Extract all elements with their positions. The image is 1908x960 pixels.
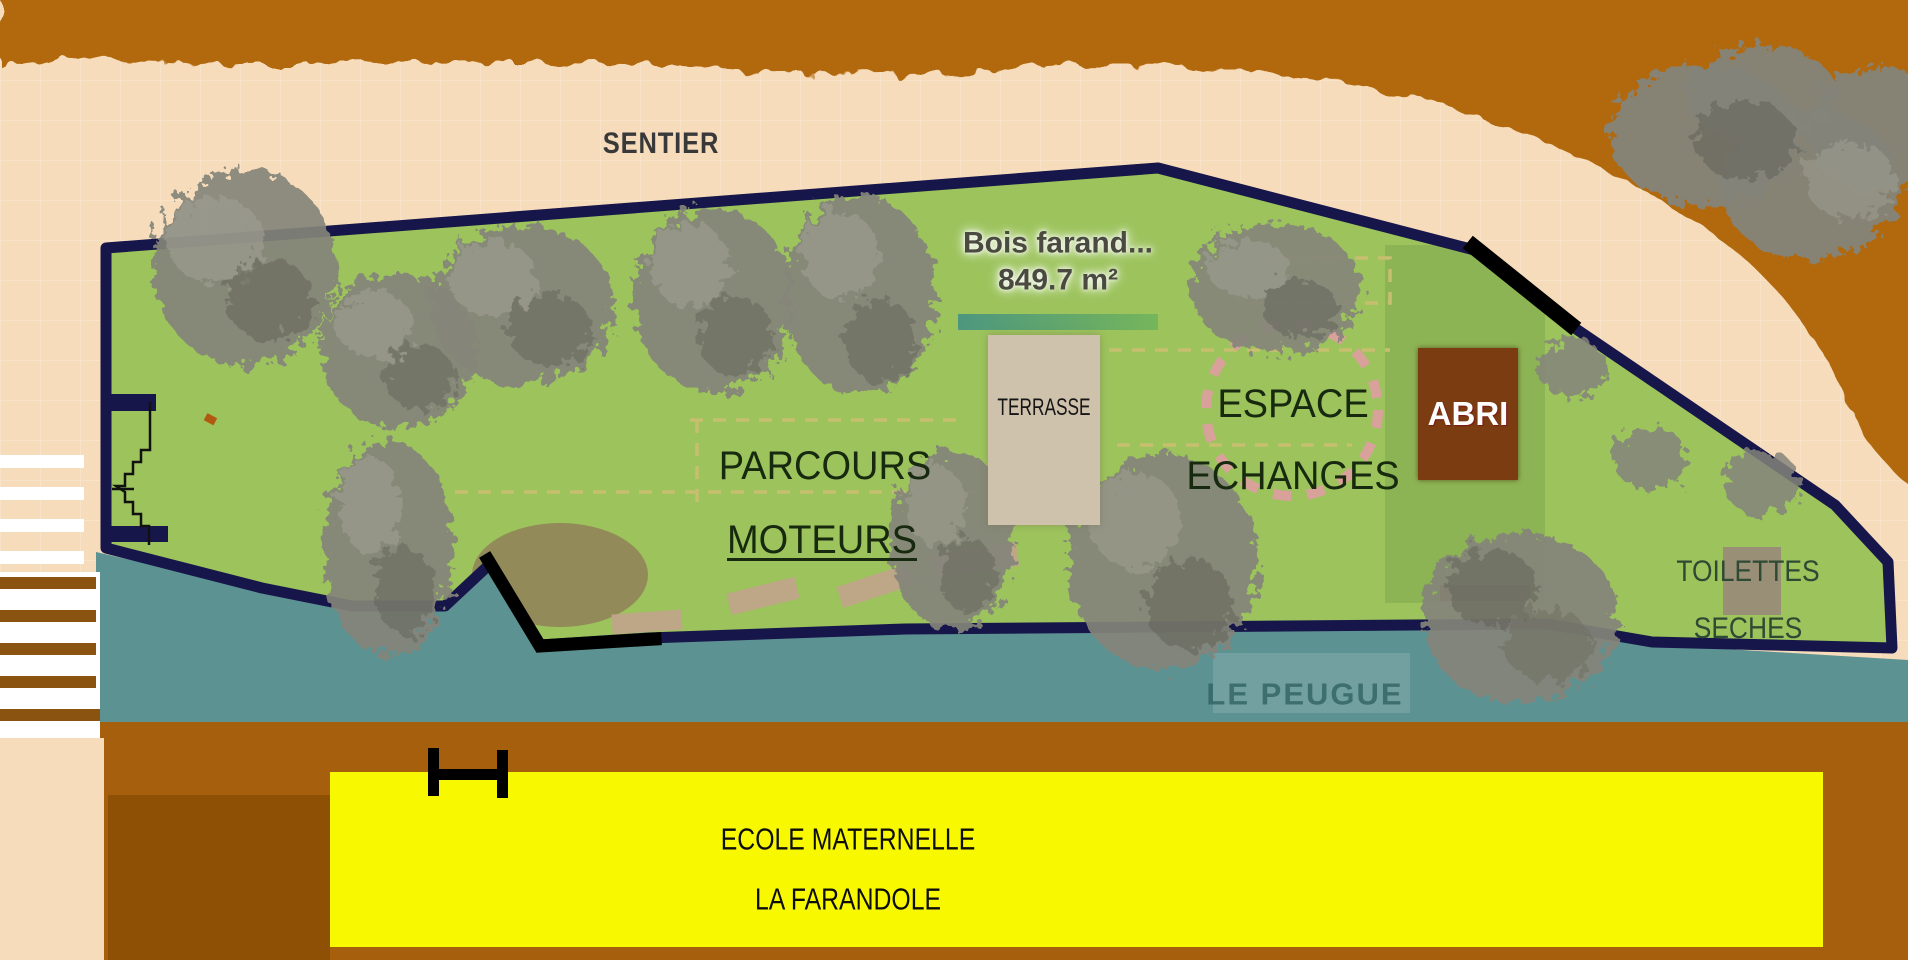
- entrance-stub-top: [104, 394, 156, 411]
- site-plan: SENTIER Bois farand... 849.7 m² TERRASSE…: [0, 0, 1908, 960]
- espace-label-line1: ESPACE: [1217, 384, 1368, 424]
- woodland-label-bar: [958, 314, 1158, 330]
- tree-canopy: [1190, 223, 1360, 353]
- espace-label-line2: ECHANGES: [1186, 456, 1399, 496]
- tree-canopy: [1422, 533, 1618, 703]
- entrance-stub-bottom: [104, 526, 168, 542]
- school-banner: [330, 772, 1823, 947]
- tree-canopy: [430, 225, 614, 385]
- path-patch-bottom-left: [0, 738, 104, 960]
- tree-canopy: [153, 170, 337, 366]
- sentier-label: SENTIER: [603, 129, 719, 159]
- tree-canopy: [633, 208, 793, 392]
- woodland-name: Bois farand...: [963, 229, 1153, 259]
- toilettes-label-line1: TOILETTES: [1676, 557, 1819, 587]
- tree-canopy: [323, 440, 453, 656]
- parcours-label-line1: PARCOURS: [719, 446, 932, 486]
- abri-label: ABRI: [1428, 395, 1509, 433]
- terrasse-label: TERRASSE: [997, 396, 1090, 420]
- school-name-line2: LA FARANDOLE: [755, 884, 941, 915]
- terrasse-box: TERRASSE: [988, 335, 1100, 525]
- abri-box: ABRI: [1418, 348, 1518, 480]
- school-name-line1: ECOLE MATERNELLE: [721, 824, 976, 855]
- woodland-label: Bois farand... 849.7 m²: [963, 229, 1153, 296]
- site-plan-svg: [0, 0, 1908, 960]
- woodland-area: 849.7 m²: [963, 266, 1153, 296]
- tree-canopy: [784, 195, 936, 395]
- stream-label: LE PEUGUE: [1206, 679, 1403, 710]
- toilettes-label-line2: SECHES: [1694, 614, 1803, 644]
- parcours-label-line2: MOTEURS: [727, 520, 917, 560]
- dark-earth-corner: [108, 795, 330, 960]
